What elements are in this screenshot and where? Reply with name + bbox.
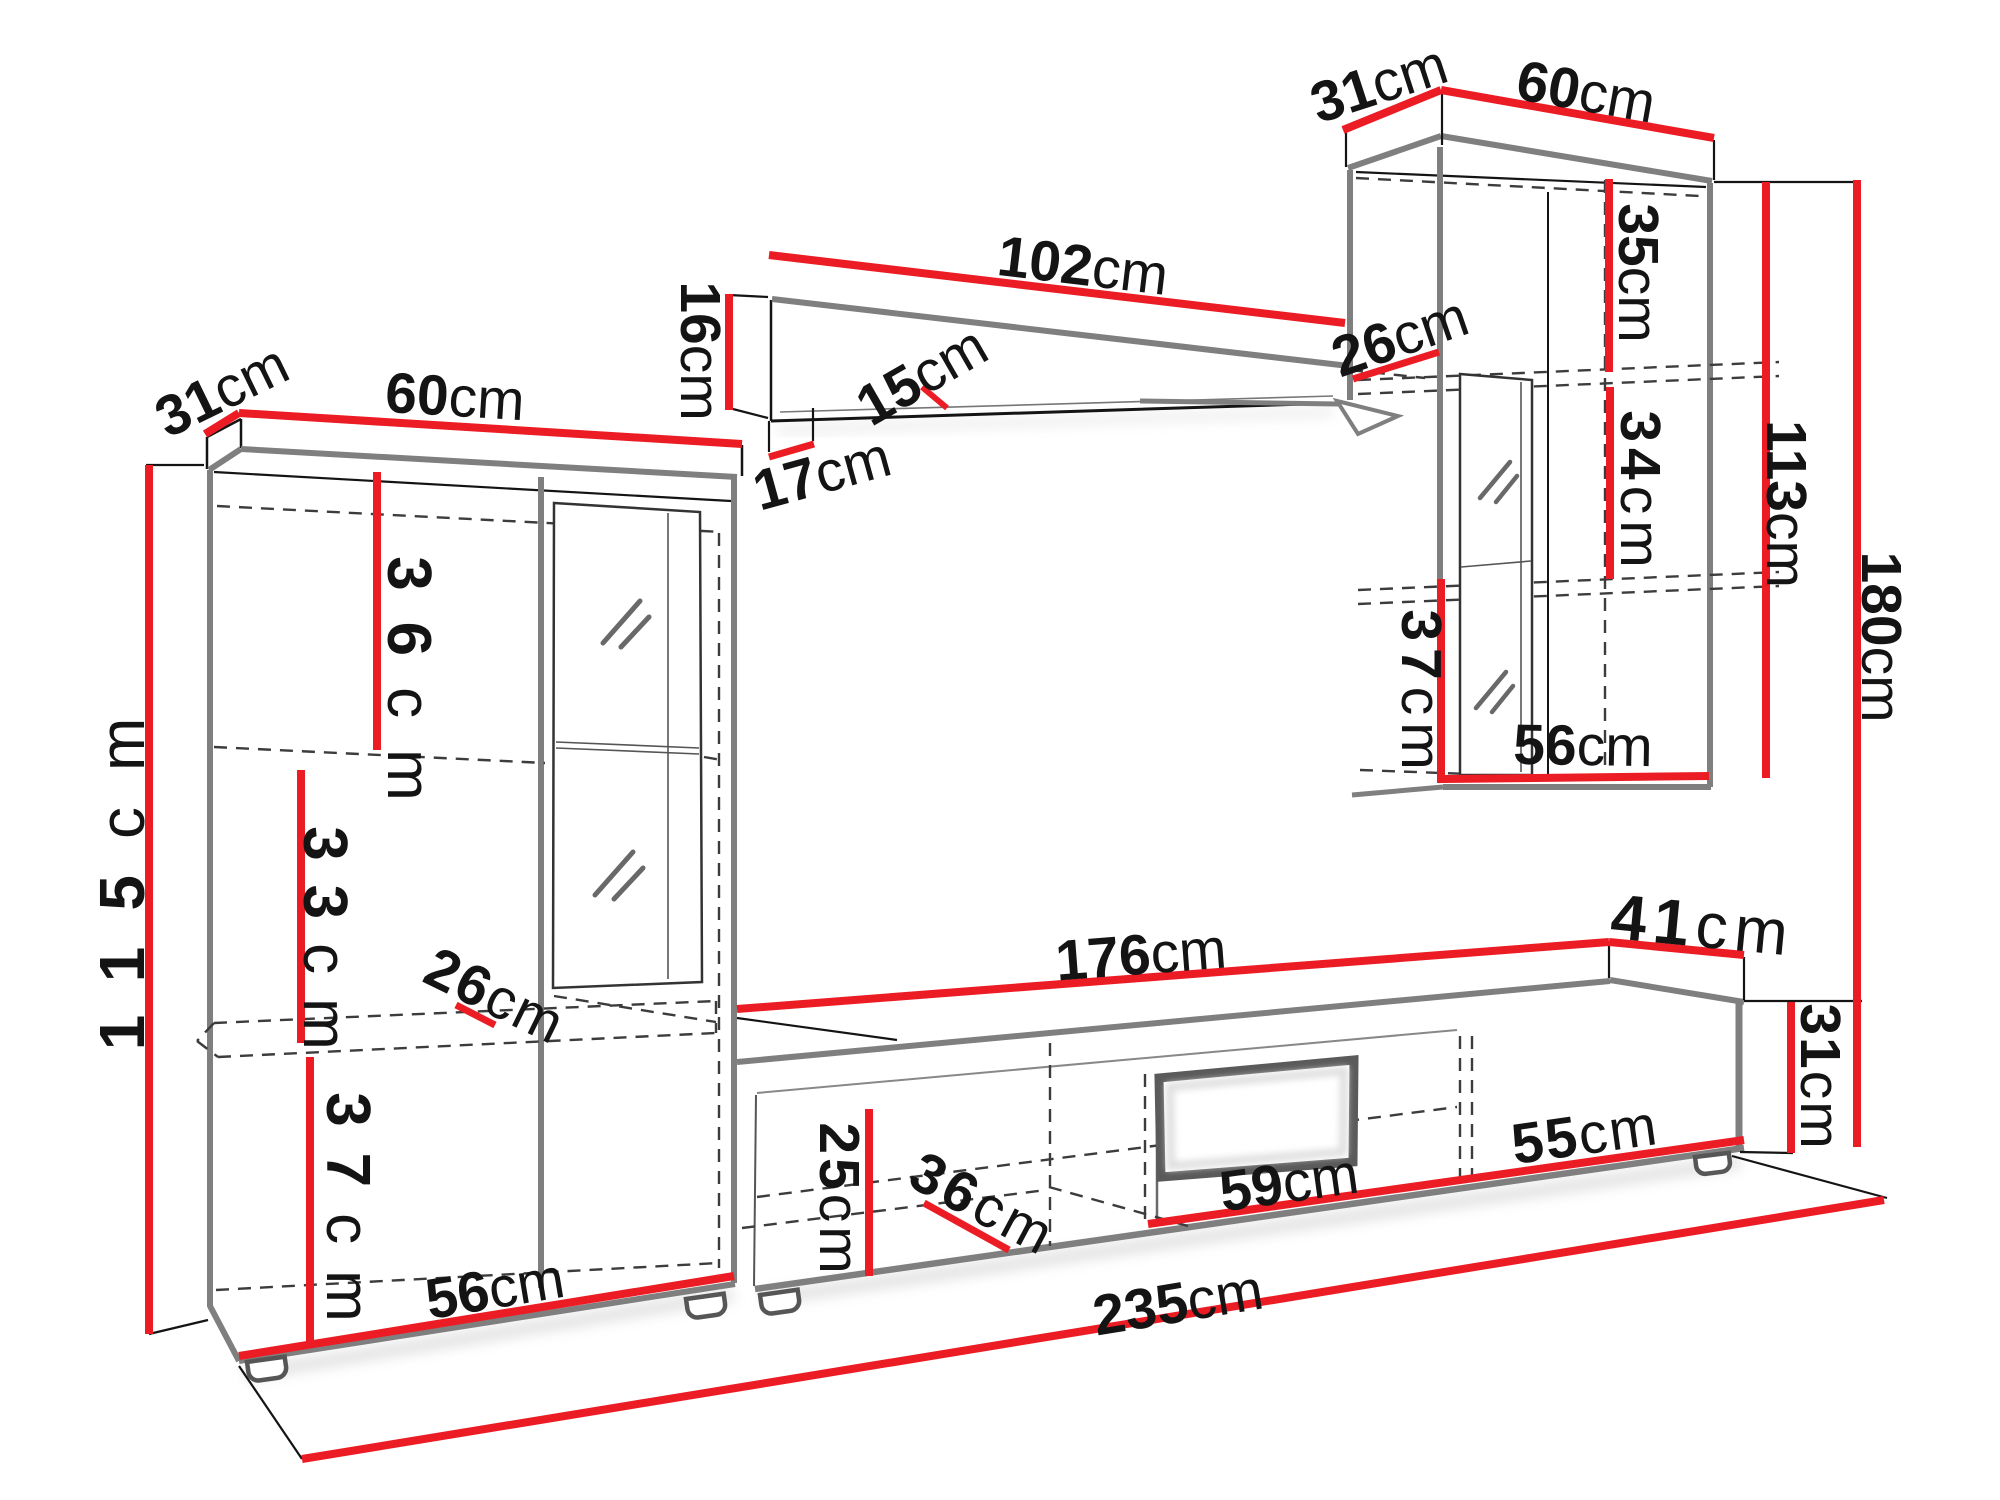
svg-text:33cm: 33cm [291,826,360,1074]
svg-text:31cm: 31cm [1788,1003,1852,1150]
svg-text:180cm: 180cm [1849,551,1913,722]
svg-text:35cm: 35cm [1606,203,1670,342]
svg-text:36cm: 36cm [375,556,444,832]
svg-text:176cm: 176cm [1053,917,1228,994]
svg-text:115cm: 115cm [86,682,158,1051]
svg-text:37cm: 37cm [1389,609,1453,776]
svg-text:37cm: 37cm [314,1092,383,1348]
svg-text:16cm: 16cm [668,281,732,420]
svg-text:56cm: 56cm [1513,713,1653,779]
svg-text:60cm: 60cm [383,361,526,433]
svg-text:113cm: 113cm [1754,420,1818,588]
svg-text:25cm: 25cm [807,1122,871,1277]
svg-text:34cm: 34cm [1608,410,1672,573]
